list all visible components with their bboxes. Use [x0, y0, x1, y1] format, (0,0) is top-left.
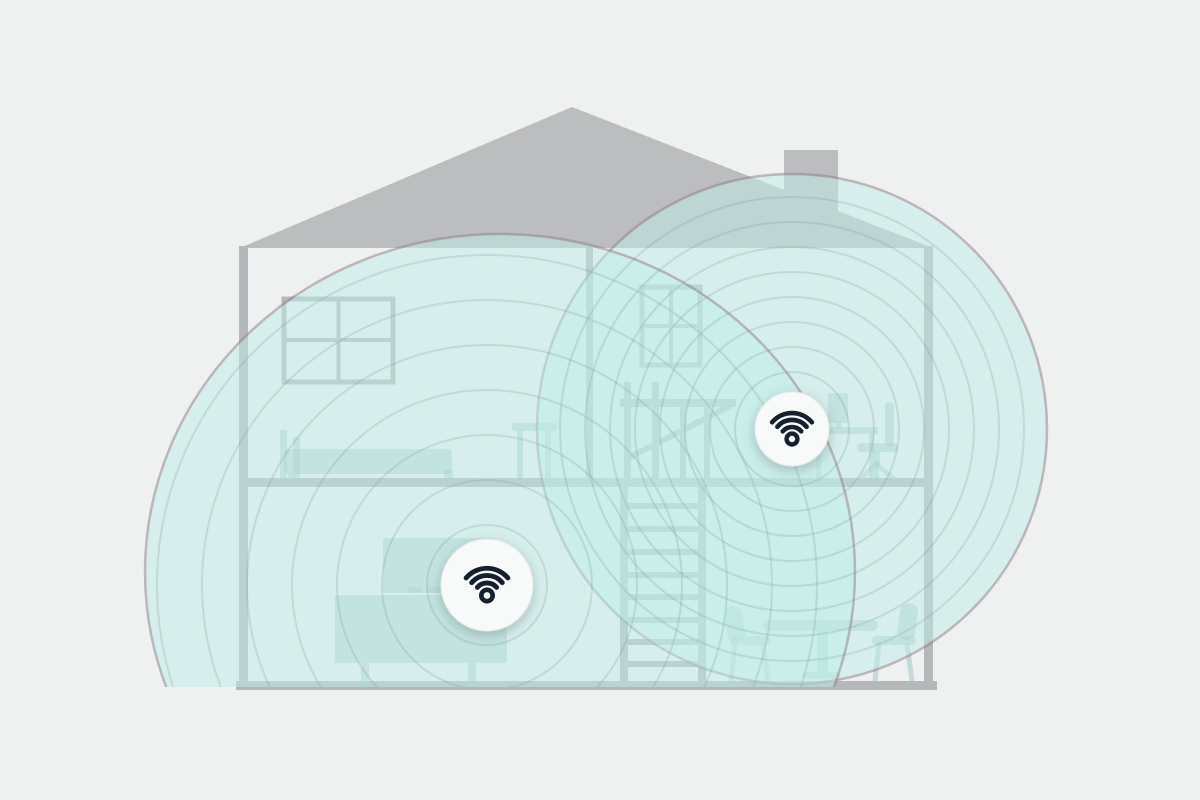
- wifi-node-downstairs: [441, 539, 533, 631]
- wifi-node-upstairs: [755, 392, 829, 466]
- mesh-wifi-house-illustration: [0, 0, 1200, 800]
